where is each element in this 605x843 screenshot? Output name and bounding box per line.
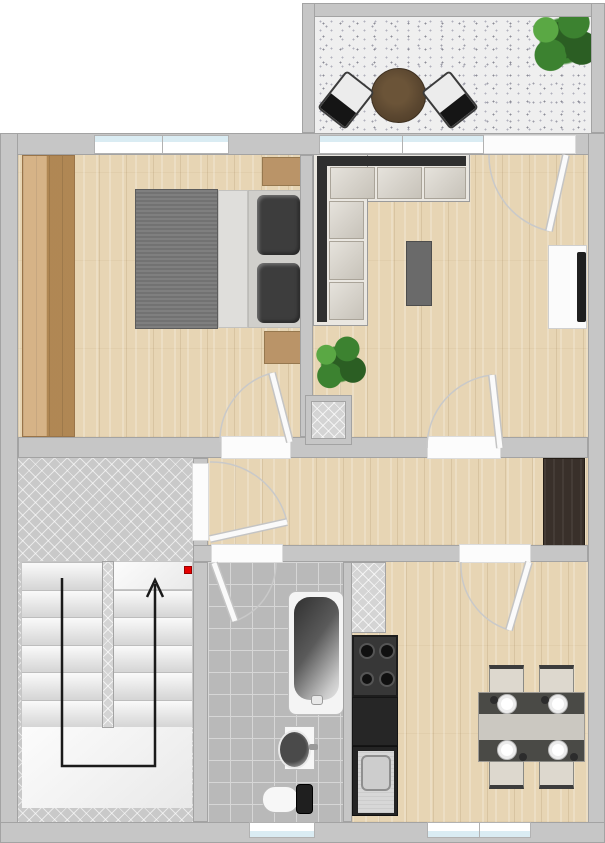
stair-step — [22, 562, 103, 590]
kitchen-worktop — [352, 697, 398, 746]
balcony-right-wall — [591, 3, 605, 133]
cup — [490, 696, 498, 704]
coffee-table — [406, 241, 432, 306]
living-room-shaft — [312, 402, 345, 438]
plate — [548, 740, 568, 760]
stair-flight-right — [113, 590, 192, 727]
stair-divider — [103, 562, 113, 727]
bathroom-window — [250, 823, 314, 837]
red-marker — [184, 566, 192, 574]
bathtub-faucet — [311, 695, 323, 705]
bedroom-wardrobe — [22, 155, 75, 437]
sofa-cushion — [329, 282, 364, 320]
sofa-backrest-left — [317, 156, 327, 322]
burner — [362, 674, 372, 684]
balcony-left-wall — [302, 3, 315, 133]
stair-step — [22, 700, 103, 728]
burner — [361, 645, 373, 657]
stair-step — [22, 590, 103, 618]
dining-chair — [489, 665, 524, 693]
plate — [497, 694, 517, 714]
stair-step — [22, 617, 103, 645]
bathroom-door-opening — [212, 545, 282, 562]
sofa-cushion — [330, 167, 375, 199]
burner — [381, 673, 393, 685]
sofa-cushion — [329, 201, 364, 239]
tv — [577, 252, 586, 322]
toilet-tank — [296, 784, 313, 814]
cup — [519, 753, 527, 761]
sofa-cushion — [377, 167, 422, 199]
stair-step — [113, 700, 192, 727]
bed-mattress — [218, 190, 248, 328]
living-room-door-opening — [428, 437, 500, 458]
kitchen-shaft — [352, 563, 385, 632]
dining-chair — [489, 761, 524, 789]
stair-step — [113, 645, 192, 672]
entrance-door-opening — [193, 464, 208, 540]
cup — [570, 753, 578, 761]
table-runner-bottom — [479, 740, 584, 761]
living-room-plant — [310, 335, 368, 393]
bed-blanket — [135, 189, 218, 329]
hallway-top-wall — [18, 437, 588, 458]
hallway-floor — [208, 458, 588, 545]
kitchen-window — [428, 823, 530, 837]
plate — [548, 694, 568, 714]
stair-step — [113, 672, 192, 699]
hallway-closet — [543, 458, 585, 546]
cup — [541, 696, 549, 704]
burner — [381, 645, 393, 657]
dining-chair — [539, 665, 574, 693]
bed-pillow-top — [257, 195, 300, 255]
plate — [497, 740, 517, 760]
sofa-cushion — [424, 167, 466, 199]
stairwell-landing-floor — [18, 458, 193, 562]
stair-step — [22, 645, 103, 673]
stair-step — [22, 672, 103, 700]
living-room-window — [320, 136, 483, 153]
stair-step — [113, 590, 192, 617]
stair-step — [113, 617, 192, 644]
stair-top-landing — [113, 562, 192, 590]
bathtub — [288, 591, 344, 715]
bedroom-door-opening — [222, 437, 290, 458]
right-exterior-wall — [588, 133, 605, 843]
gas-hob — [352, 635, 398, 697]
nightstand-bottom — [264, 331, 302, 364]
balcony-top-wall — [302, 3, 605, 17]
washbasin — [278, 730, 311, 769]
sofa-backrest-top — [317, 156, 466, 166]
stair-flight-left — [22, 562, 103, 727]
dining-chair — [539, 761, 574, 789]
bedroom-window — [95, 136, 228, 153]
kitchen-door-opening — [460, 545, 530, 562]
kitchen-sink-basin — [361, 755, 391, 791]
washbasin-faucet — [309, 744, 318, 750]
nightstand-top — [262, 157, 302, 186]
left-exterior-wall — [0, 133, 18, 843]
kitchen-sink-unit — [352, 746, 398, 816]
stair-bathroom-wall — [193, 562, 208, 822]
toilet-bowl — [262, 786, 299, 813]
bathroom-kitchen-wall — [343, 562, 352, 822]
stair-bottom-landing — [22, 727, 192, 808]
bed-pillow-bottom — [257, 263, 300, 323]
balcony-table — [371, 68, 426, 123]
sofa-cushion — [329, 241, 364, 280]
bathtub-interior — [294, 597, 339, 700]
balcony-door-opening — [483, 136, 575, 153]
floor-plan — [0, 0, 605, 843]
